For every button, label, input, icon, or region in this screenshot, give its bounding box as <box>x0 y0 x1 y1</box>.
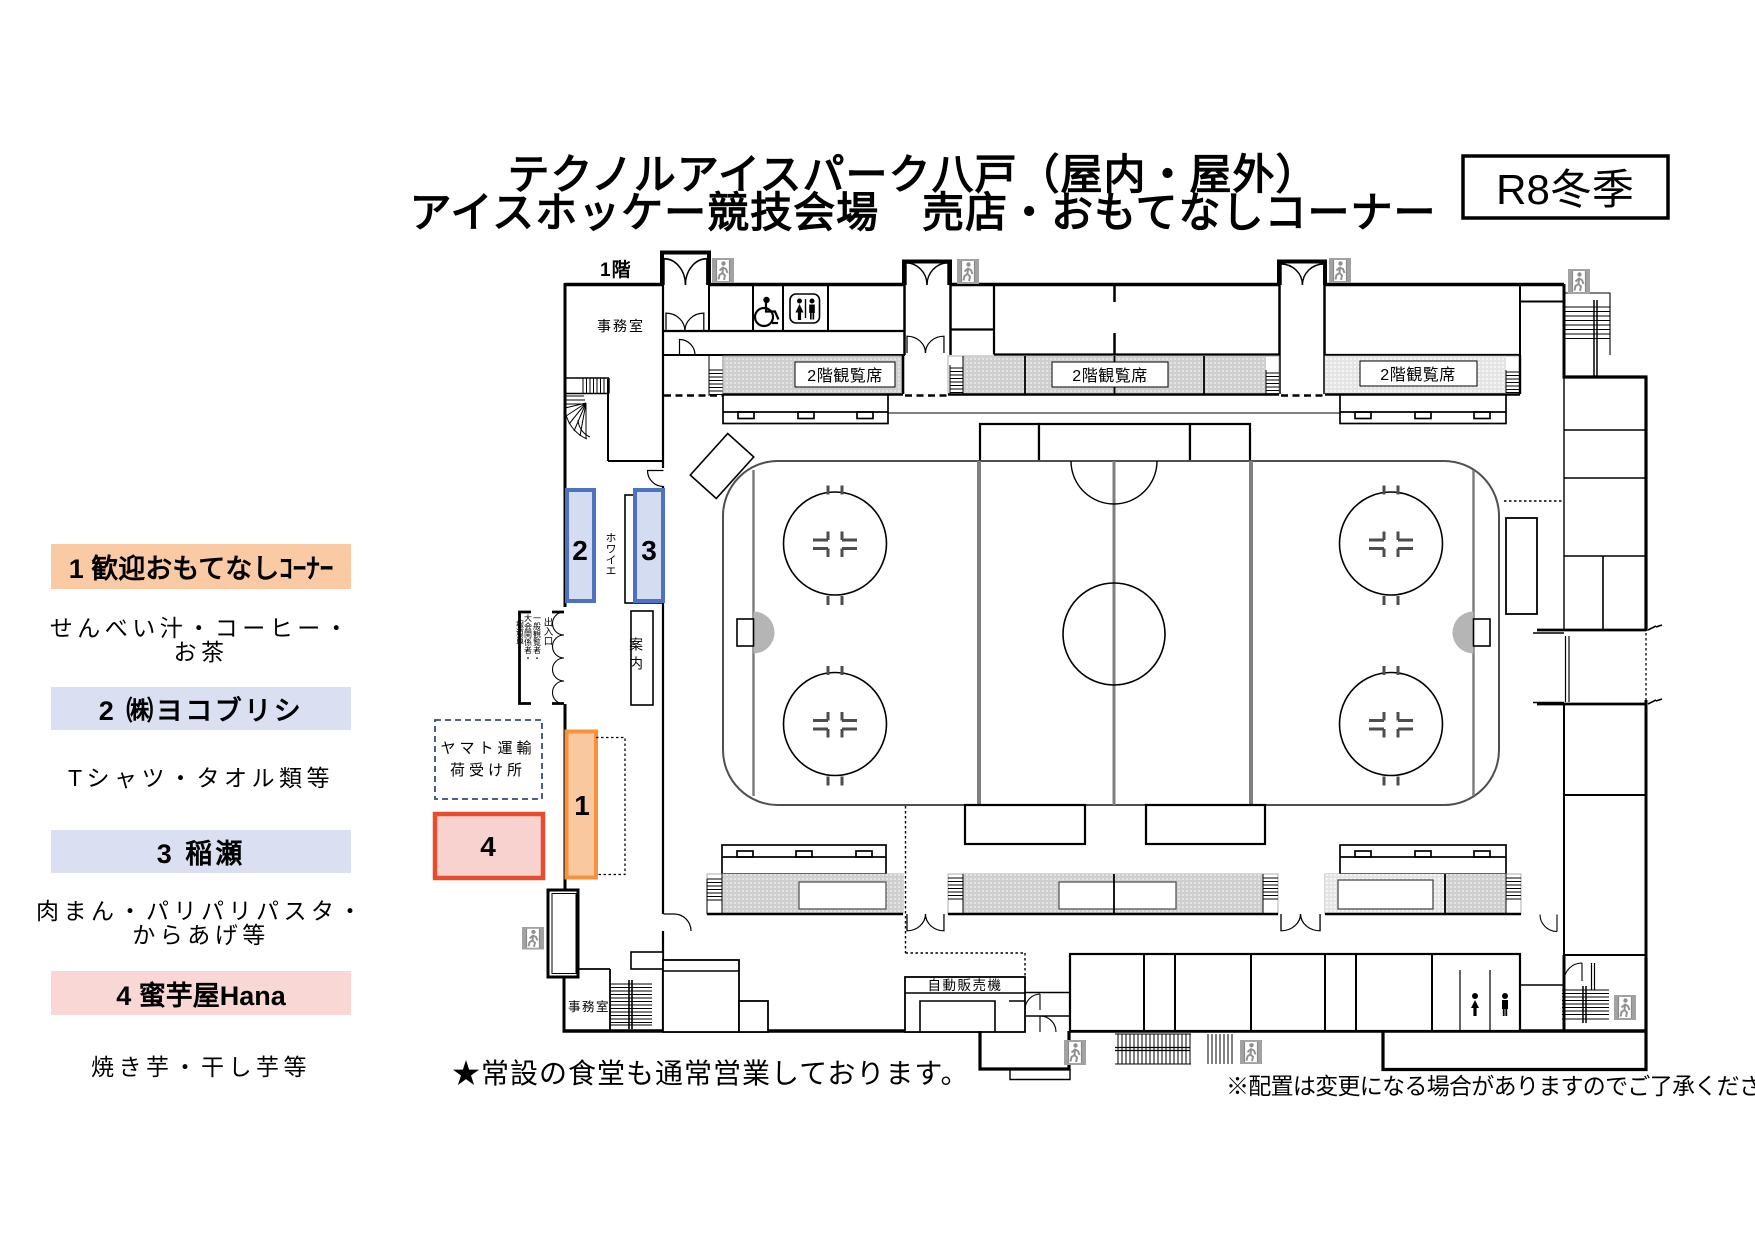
svg-text:ヤマト運輸: ヤマト運輸 <box>440 740 535 757</box>
svg-text:※配置は変更になる場合がありますのでご了承ください。: ※配置は変更になる場合がありますのでご了承ください。 <box>1226 1073 1755 1099</box>
svg-text:アイスホッケー競技会場 売店・おもてなしコーナー: アイスホッケー競技会場 売店・おもてなしコーナー <box>410 189 1437 236</box>
svg-text:3: 3 <box>641 535 657 566</box>
svg-text:事務室: 事務室 <box>597 318 645 334</box>
svg-text:2階観覧席: 2階観覧席 <box>807 366 882 385</box>
svg-text:R8冬季: R8冬季 <box>1496 166 1634 213</box>
svg-text:自動販売機: 自動販売機 <box>928 978 1003 993</box>
svg-text:せんべい汁・コーヒー・: せんべい汁・コーヒー・ <box>50 615 353 641</box>
svg-text:ホワイエ: ホワイエ <box>604 532 616 576</box>
svg-text:からあげ等: からあげ等 <box>132 922 270 948</box>
svg-text:4: 4 <box>480 831 496 862</box>
svg-text:1 歓迎おもてなしｺｰﾅｰ: 1 歓迎おもてなしｺｰﾅｰ <box>69 553 333 584</box>
svg-text:2 ㈱ヨコブリシ: 2 ㈱ヨコブリシ <box>99 695 304 726</box>
svg-text:Tシャツ・タオル類等: Tシャツ・タオル類等 <box>68 765 334 791</box>
svg-text:報道員: 報道員 <box>516 620 525 645</box>
svg-text:お茶: お茶 <box>174 639 229 665</box>
svg-text:荷受け所: 荷受け所 <box>450 762 526 779</box>
svg-text:3 稲瀬: 3 稲瀬 <box>157 839 246 869</box>
svg-text:2階観覧席: 2階観覧席 <box>1072 366 1147 385</box>
svg-text:焼き芋・干し芋等: 焼き芋・干し芋等 <box>91 1054 311 1080</box>
svg-text:一般観覧者・: 一般観覧者・ <box>533 614 542 662</box>
svg-text:案内: 案内 <box>628 636 644 675</box>
svg-text:肉まん・パリパリパスタ・: 肉まん・パリパリパスタ・ <box>36 898 366 924</box>
svg-text:4 蜜芋屋Hana: 4 蜜芋屋Hana <box>116 981 287 1011</box>
svg-text:2: 2 <box>572 535 588 566</box>
svg-text:事務室: 事務室 <box>568 999 610 1014</box>
svg-text:大会関係者・: 大会関係者・ <box>524 613 533 662</box>
svg-text:2階観覧席: 2階観覧席 <box>1380 365 1455 384</box>
svg-text:1: 1 <box>574 790 590 821</box>
svg-text:★常設の食堂も通常営業しております。: ★常設の食堂も通常営業しております。 <box>452 1058 970 1089</box>
svg-text:1階: 1階 <box>600 259 632 281</box>
svg-text:出入口: 出入口 <box>542 616 554 645</box>
